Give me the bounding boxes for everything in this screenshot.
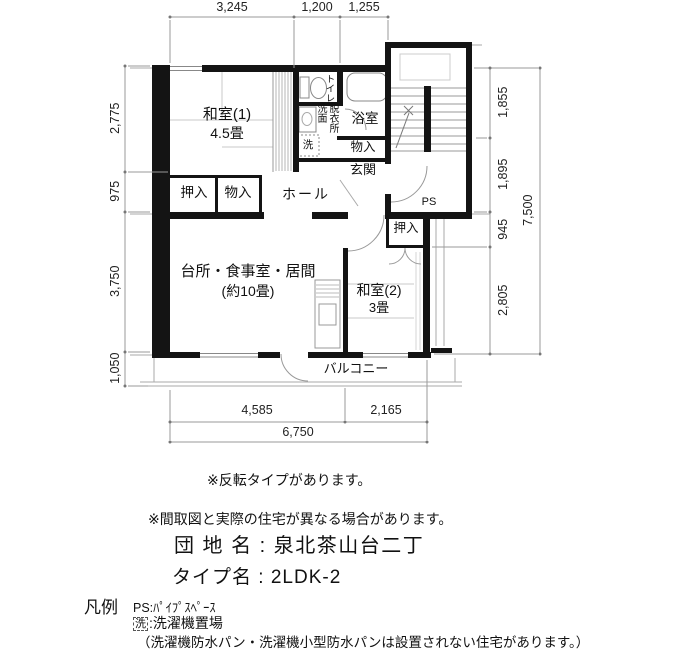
legend-washer: 洗:洗濯機置場 (133, 613, 223, 633)
toilet-tank (300, 77, 309, 98)
note-difference: ※間取図と実際の住宅が異なる場合があります。 (148, 509, 452, 529)
washer-symbol-plan: 洗 (300, 139, 316, 151)
label-ps: PS (417, 196, 441, 209)
room-label-balcony: バルコニー (310, 362, 402, 377)
room-label-oshiire1: 押入 (170, 185, 218, 201)
dim-bottom-1: 4,585 (222, 404, 292, 417)
legend-washer-note: （洗濯機防水パン・洗濯機小型防水パンは設置されない住宅があります。） (137, 631, 589, 650)
room-size-washitsu2: 3畳 (344, 301, 414, 316)
dim-right-3: 945 (497, 203, 510, 255)
room-label-washroom: 洗面 脱衣所 (315, 103, 338, 133)
bathtub (347, 73, 387, 101)
legend-washer-symbol: 洗 (133, 617, 148, 631)
closet-door-arc (405, 248, 421, 264)
room-label-washitsu1: 和室(1) (167, 106, 287, 123)
room-label-monoire1: 物入 (216, 185, 260, 201)
dim-bottom-2: 2,165 (351, 404, 421, 417)
dim-right-total: 7,500 (522, 184, 535, 236)
type-name: タイプ名 : 2LDK-2 (172, 562, 341, 589)
dim-top-3: 1,255 (329, 1, 399, 14)
room-label-monoire2: 物入 (339, 140, 387, 154)
dim-left-4: 1,050 (109, 342, 122, 394)
room-label-oshiire2: 押入 (386, 221, 426, 235)
balcony-door-arc (281, 354, 308, 381)
dim-right-4: 2,805 (497, 274, 510, 326)
washitsu2-door-arc (348, 215, 384, 251)
room-label-toilet: トイレ (324, 71, 334, 105)
room-label-genkan: 玄関 (339, 163, 387, 178)
estate-name: 団 地 名 : 泉北茶山台二丁 (174, 529, 424, 558)
legend-title: 凡例 (84, 593, 118, 618)
washroom-col2: 脱衣所 (327, 103, 338, 133)
room-label-ldk: 台所・食事室・居間 (160, 263, 336, 280)
room-label-bath: 浴室 (341, 111, 389, 127)
floorplan-page: 和室(1) 4.5畳 押入 物入 ホール トイレ 洗面 脱衣所 洗 浴室 物入 … (0, 0, 700, 650)
washroom-col1: 洗面 (315, 103, 326, 133)
dim-top-1: 3,245 (197, 1, 267, 14)
dim-right-1: 1,855 (497, 76, 510, 128)
dim-left-3: 3,750 (109, 255, 122, 307)
closet-door-arc (389, 248, 405, 264)
note-flip-type: ※反転タイプがあります。 (207, 470, 371, 490)
room-label-hall: ホール (268, 186, 344, 202)
dim-bottom-total: 6,750 (263, 426, 333, 439)
room-size-ldk: (約10畳) (160, 283, 336, 299)
legend-washer-label: :洗濯機置場 (149, 615, 223, 631)
kitchen-sink (319, 304, 336, 325)
dim-left-2: 975 (109, 165, 122, 217)
room-size-washitsu1: 4.5畳 (167, 125, 287, 141)
dim-right-2: 1,895 (497, 148, 510, 200)
room-label-washitsu2: 和室(2) (344, 282, 414, 298)
dim-left-1: 2,775 (109, 92, 122, 144)
